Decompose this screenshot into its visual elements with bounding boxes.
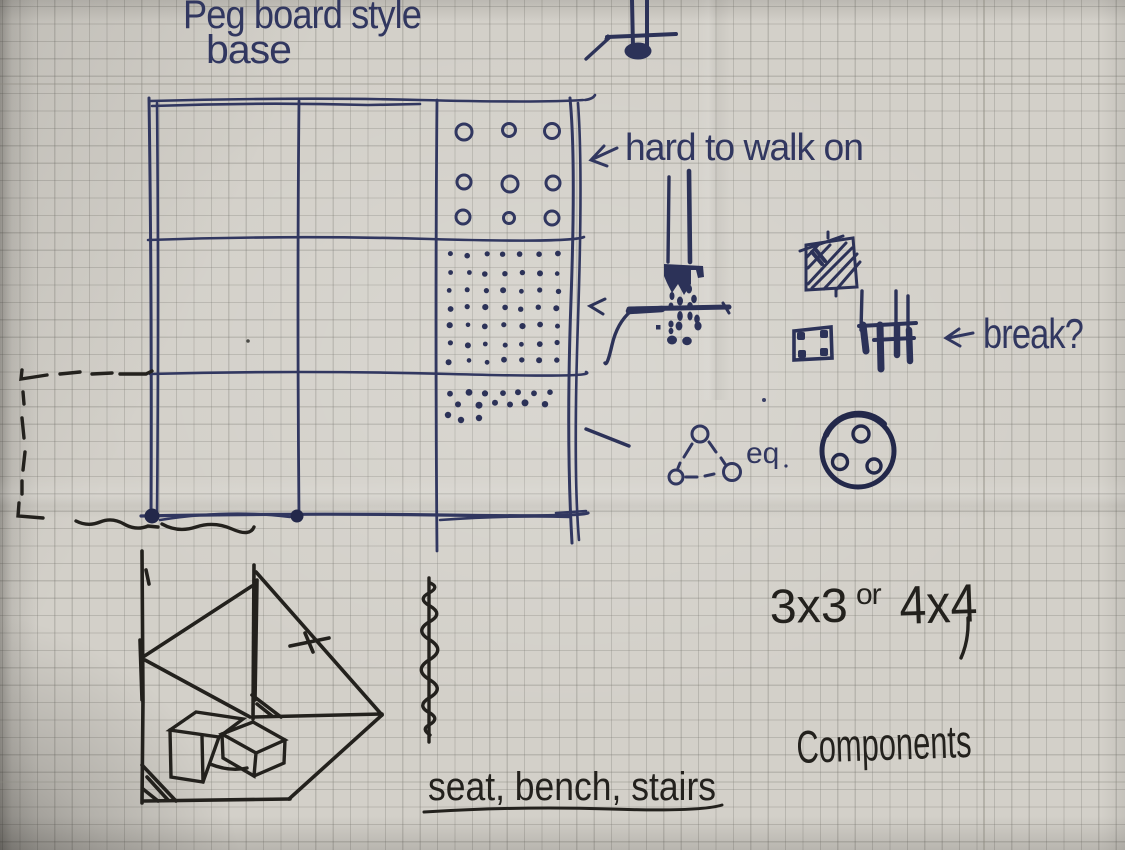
svg-text:base: base	[206, 28, 291, 72]
svg-text:or: or	[856, 578, 882, 611]
svg-text:hard to walk on: hard to walk on	[625, 127, 863, 169]
svg-text:break?: break?	[983, 310, 1083, 357]
svg-text:3x3: 3x3	[769, 580, 848, 634]
svg-text:Components: Components	[796, 715, 973, 773]
svg-text:eq: eq	[746, 437, 779, 470]
svg-text:seat, bench, stairs: seat, bench, stairs	[428, 765, 716, 809]
